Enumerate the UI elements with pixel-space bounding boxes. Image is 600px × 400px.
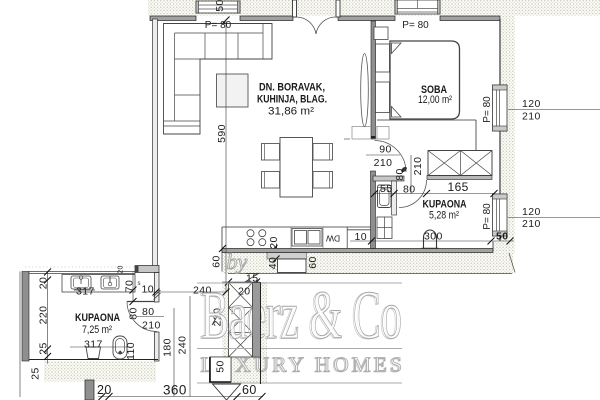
svg-text:20: 20	[268, 236, 280, 248]
svg-text:60: 60	[242, 383, 257, 397]
svg-text:210: 210	[522, 218, 541, 230]
svg-text:590: 590	[216, 124, 228, 143]
svg-text:180: 180	[162, 338, 174, 357]
svg-text:60: 60	[211, 255, 223, 267]
svg-text:80: 80	[403, 184, 415, 196]
svg-text:10: 10	[355, 231, 367, 243]
svg-text:240: 240	[177, 336, 189, 355]
svg-text:120: 120	[522, 206, 541, 218]
svg-text:317: 317	[76, 286, 95, 298]
svg-text:20: 20	[118, 265, 125, 274]
svg-text:DN. BORAVAK,: DN. BORAVAK,	[259, 82, 325, 94]
svg-text:220: 220	[38, 306, 50, 325]
svg-text:210: 210	[412, 157, 424, 176]
svg-text:50: 50	[215, 360, 227, 372]
svg-text:360: 360	[163, 383, 187, 398]
svg-text:7,25 m²: 7,25 m²	[82, 324, 112, 336]
svg-text:40: 40	[267, 257, 279, 269]
svg-text:P= 80: P= 80	[482, 203, 493, 230]
svg-text:50: 50	[496, 231, 508, 243]
svg-text:90: 90	[379, 144, 391, 156]
svg-text:P= 80: P= 80	[402, 20, 429, 31]
svg-text:165: 165	[448, 180, 469, 194]
svg-text:by: by	[227, 249, 248, 274]
svg-text:210: 210	[374, 157, 393, 169]
svg-text:P= 80: P= 80	[482, 96, 493, 123]
svg-text:120: 120	[522, 98, 541, 110]
svg-text:210: 210	[142, 320, 161, 332]
svg-text:25: 25	[30, 367, 42, 379]
svg-text:80: 80	[128, 307, 140, 319]
svg-text:KUHINJA, BLAG.: KUHINJA, BLAG.	[257, 94, 327, 106]
svg-text:20: 20	[38, 277, 50, 289]
svg-text:210: 210	[522, 111, 541, 123]
svg-text:5,28 m²: 5,28 m²	[429, 210, 459, 222]
svg-text:50: 50	[214, 0, 226, 12]
svg-text:70: 70	[124, 280, 136, 292]
svg-text:80: 80	[394, 168, 406, 180]
svg-text:80: 80	[142, 306, 154, 318]
svg-text:300: 300	[424, 231, 443, 243]
svg-text:60: 60	[307, 256, 319, 268]
svg-text:55: 55	[380, 183, 392, 195]
svg-text:317: 317	[84, 339, 103, 351]
svg-text:110: 110	[125, 342, 137, 360]
svg-text:Baerz & Co: Baerz & Co	[201, 277, 402, 353]
svg-text:s: s	[138, 281, 141, 287]
svg-text:20: 20	[97, 383, 112, 397]
svg-text:25: 25	[38, 342, 50, 354]
svg-text:KUPAONA: KUPAONA	[75, 312, 120, 324]
svg-text:31,86 m²: 31,86 m²	[268, 106, 314, 118]
svg-text:10: 10	[142, 284, 154, 296]
svg-text:DW: DW	[326, 234, 340, 244]
svg-text:12,00 m²: 12,00 m²	[418, 94, 452, 106]
svg-text:P= 80: P= 80	[205, 20, 232, 31]
